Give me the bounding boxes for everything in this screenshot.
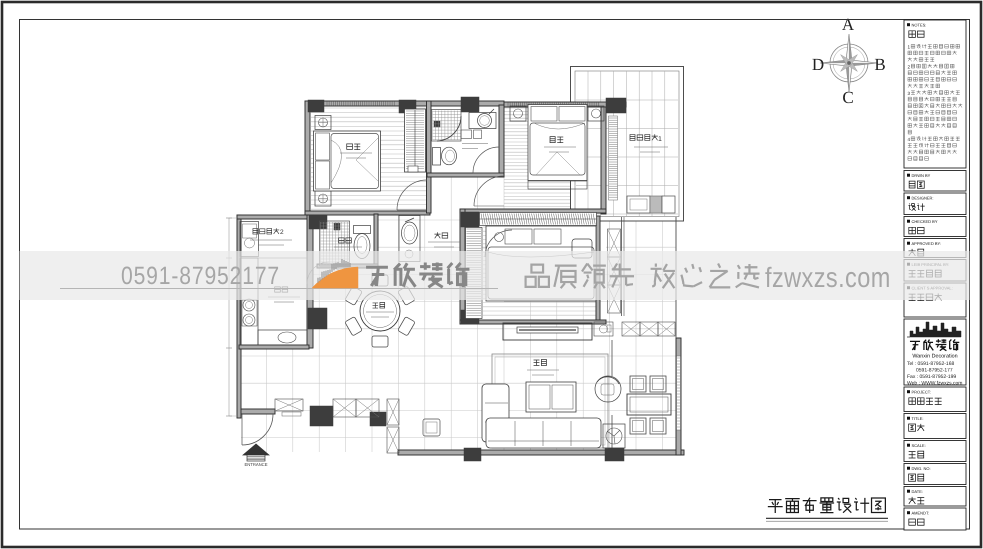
svg-text:0591-87952-177: 0591-87952-177	[916, 368, 953, 374]
svg-text:Fax : 0591-87952-199: Fax : 0591-87952-199	[907, 374, 956, 380]
svg-text:DATE:: DATE:	[912, 489, 923, 494]
svg-text:AMENDT:: AMENDT:	[912, 511, 930, 516]
svg-text:DRWN BY: DRWN BY	[912, 173, 931, 178]
svg-text:Wanxin Decoration: Wanxin Decoration	[912, 354, 957, 360]
svg-text:A: A	[842, 15, 855, 34]
svg-text:PROJECT:: PROJECT:	[912, 390, 931, 395]
svg-text:CHECKED BY: CHECKED BY	[912, 219, 938, 224]
svg-text:3: 3	[908, 91, 911, 96]
svg-text:APPROVED BY:: APPROVED BY:	[912, 241, 942, 246]
svg-text:2: 2	[908, 64, 911, 69]
svg-text:Tel : 0591-87952-168: Tel : 0591-87952-168	[907, 361, 954, 367]
svg-text:Web : WWW.fzwxzs.com: Web : WWW.fzwxzs.com	[907, 381, 962, 387]
svg-text:DWG. NO:: DWG. NO:	[912, 466, 931, 471]
svg-text:2: 2	[280, 229, 284, 236]
svg-text:B: B	[874, 55, 885, 74]
svg-text:C: C	[842, 88, 853, 107]
svg-text:1: 1	[658, 136, 662, 143]
svg-text:DESIGNER:: DESIGNER:	[912, 196, 934, 201]
svg-text:D: D	[812, 55, 824, 74]
svg-text:TITLE:: TITLE:	[912, 416, 924, 421]
svg-text:1: 1	[908, 45, 911, 50]
svg-text:SCALE:: SCALE:	[912, 443, 926, 448]
svg-text:4: 4	[908, 137, 911, 142]
svg-text:0591-87952177: 0591-87952177	[121, 262, 280, 290]
svg-text:ENTRANCE: ENTRANCE	[244, 462, 267, 467]
svg-text:NOTES:: NOTES:	[912, 23, 927, 28]
svg-text:fzwxzs.com: fzwxzs.com	[765, 262, 891, 293]
